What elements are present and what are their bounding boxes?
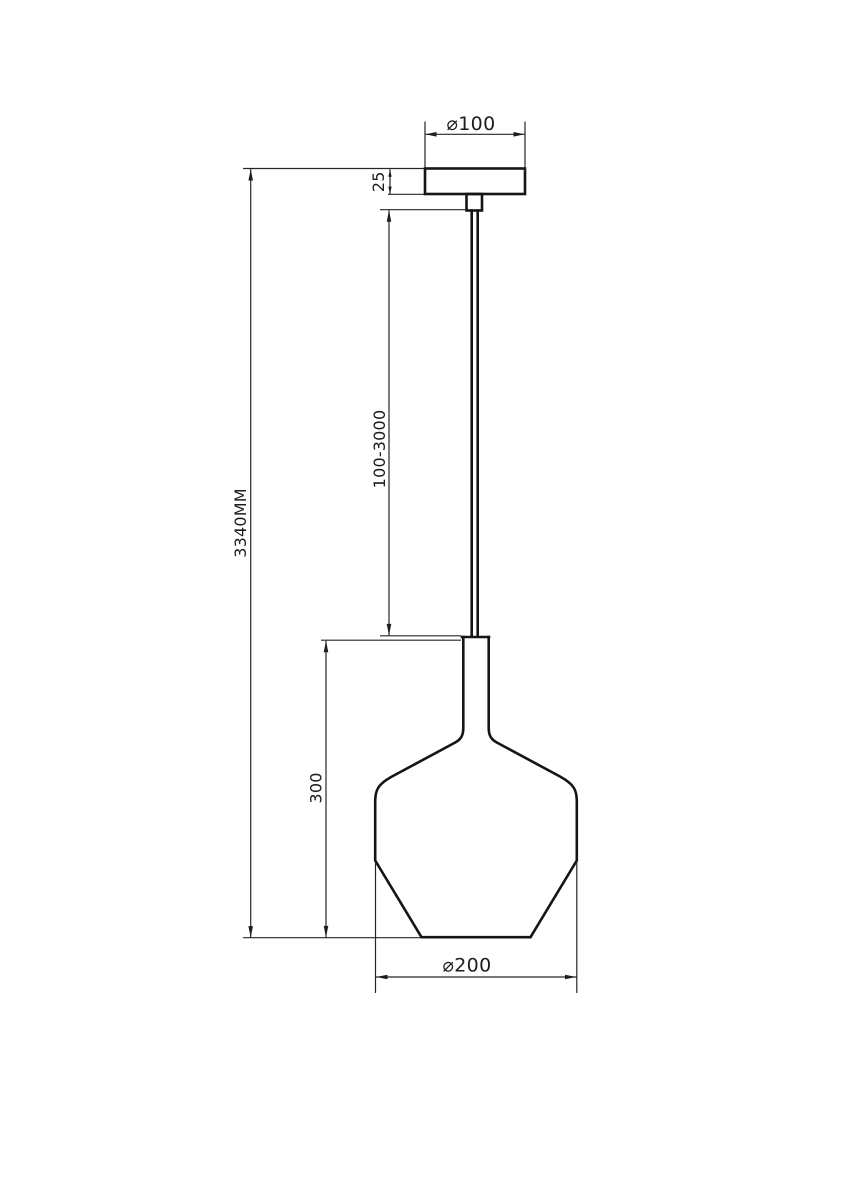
arrowhead-down-icon	[324, 926, 329, 937]
dimension-label-shade-diameter: ⌀200	[443, 955, 492, 977]
dimension-cable-length: 100-3000	[370, 210, 466, 636]
arrowhead-up-icon	[387, 210, 392, 221]
arrowhead-right-icon	[565, 975, 576, 980]
arrowhead-up-icon	[248, 169, 253, 180]
dimension-label-canopy-diameter: ⌀100	[447, 113, 496, 135]
arrowhead-up-icon	[388, 170, 391, 177]
dimension-shade-diameter: ⌀200	[376, 862, 577, 993]
ceiling-canopy	[425, 169, 525, 195]
dimension-label-overall-height: 3340MM	[231, 488, 250, 558]
drawing-sheet: 3340MM ⌀100 25 100-3000	[0, 0, 848, 1200]
arrowhead-left-icon	[425, 132, 436, 137]
dimension-shade-height: 300	[307, 640, 462, 937]
cable-grip	[467, 194, 483, 211]
dimension-label-cable-length: 100-3000	[370, 410, 389, 489]
dimension-canopy-height: 25	[369, 169, 424, 194]
arrowhead-down-icon	[387, 624, 392, 635]
dimension-label-canopy-height: 25	[369, 171, 388, 192]
dimension-canopy-diameter: ⌀100	[425, 113, 525, 172]
dimension-label-shade-height: 300	[307, 772, 326, 803]
lamp-shade-outline	[375, 637, 577, 937]
pendant-lamp-drawing: 3340MM ⌀100 25 100-3000	[0, 0, 848, 1200]
arrowhead-down-icon	[248, 926, 253, 937]
fixture-outline	[375, 169, 577, 938]
arrowhead-down-icon	[388, 187, 391, 194]
arrowhead-left-icon	[376, 975, 387, 980]
dimension-overall-height: 3340MM	[231, 169, 424, 938]
arrowhead-right-icon	[514, 132, 525, 137]
arrowhead-up-icon	[324, 641, 329, 652]
